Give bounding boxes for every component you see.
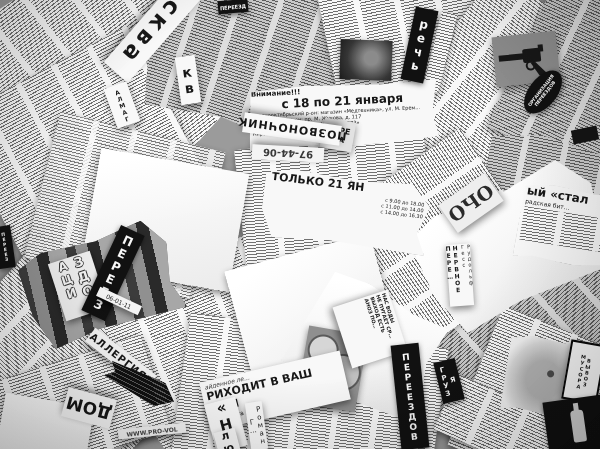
top-label-text: ПЕРЕЕЗД (220, 2, 247, 10)
nervnoe-scrap: НЕРВНОЕ ПЕРЕ… Рудольф Гесс (446, 243, 474, 307)
phone-text: 97-44-06 (263, 147, 314, 161)
almag-text: АЛМАГ (113, 87, 132, 122)
left-label-text: ПЕРЕЕЗ (0, 232, 9, 262)
person-photo (339, 39, 392, 81)
bottle-icon (569, 409, 586, 442)
dom-text: ДОМ (64, 392, 114, 423)
newspaper-collage-photo: москва кв АЛМАГ ПЕРЕЕЗД Внимание!!! с 18… (0, 0, 600, 449)
bottle-ad (542, 394, 600, 449)
pereezdov-text: ПЕРЕЕЗДОВ (400, 351, 419, 442)
lyu-text: лю (217, 428, 236, 449)
vyvoz-text: ВЫВОЗ МУСОРА (573, 343, 595, 400)
kv-text: кв (178, 63, 198, 97)
